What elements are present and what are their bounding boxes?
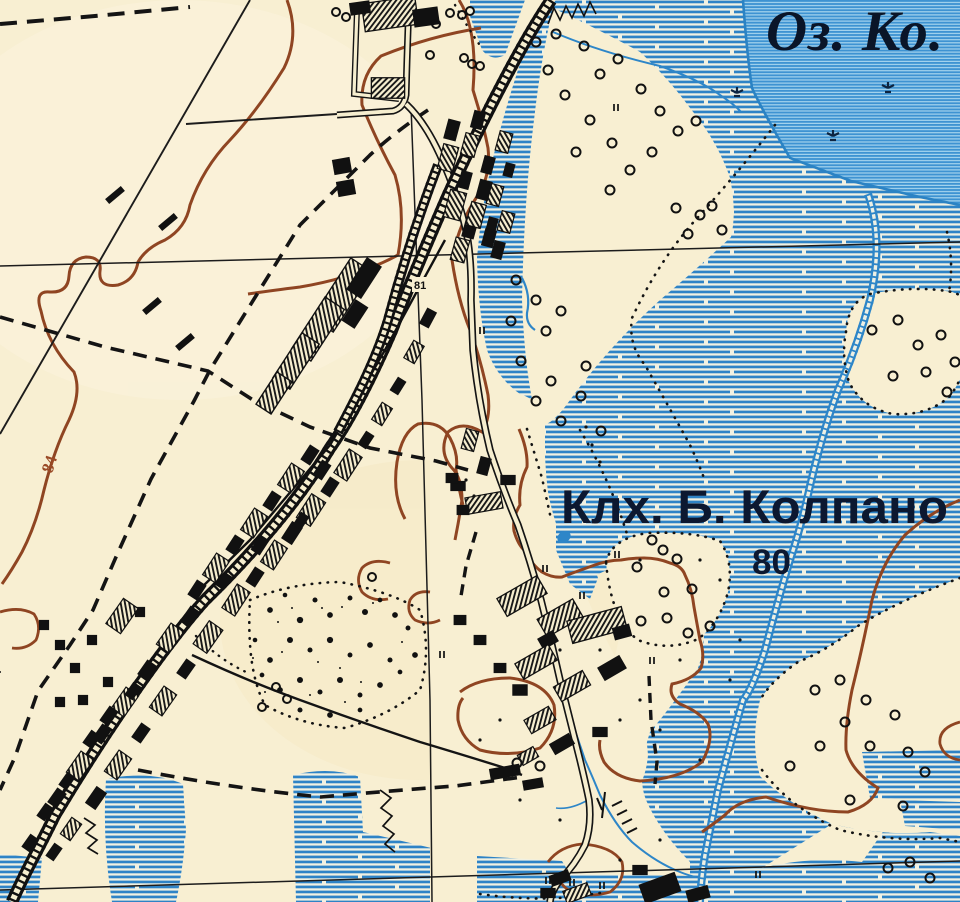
svg-text:80: 80 xyxy=(752,543,791,582)
svg-text:Клх. Б. Колпано: Клх. Б. Колпано xyxy=(561,480,948,533)
svg-text:Оз. Ко.: Оз. Ко. xyxy=(766,0,944,63)
svg-text:81: 81 xyxy=(414,280,426,292)
